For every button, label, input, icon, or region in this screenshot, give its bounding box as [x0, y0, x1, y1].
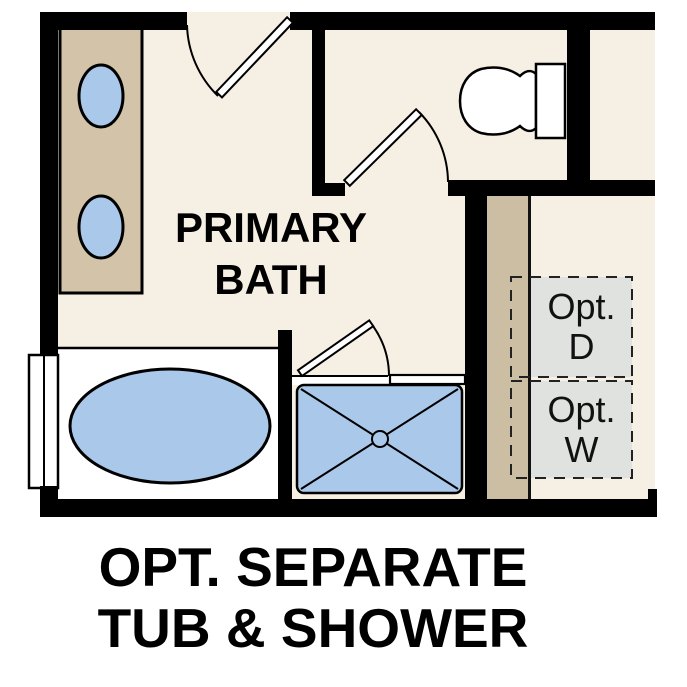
wall-water-closet-right	[567, 12, 590, 182]
wall-tub-shower-divider	[278, 330, 292, 500]
entry-doorway-gap	[187, 12, 290, 30]
wall-closet-left	[465, 196, 487, 500]
sink-bottom-icon	[79, 196, 123, 258]
plan-caption-line1: OPT. SEPARATE	[98, 537, 529, 598]
wall-left-upper	[40, 12, 58, 356]
shower-drain-icon	[372, 431, 388, 447]
shower-glass-panel	[390, 375, 465, 384]
optional-dryer-line2: D	[569, 327, 595, 367]
wall-bottom	[40, 499, 655, 517]
wall-mid-horizontal	[448, 180, 655, 196]
sink-top-icon	[79, 65, 123, 127]
floor-plan-page: PRIMARY BATH Opt. D Opt. W OPT. SEPARATE…	[0, 0, 687, 687]
wall-top-left	[40, 12, 187, 30]
room-label-line2: BATH	[175, 254, 367, 306]
room-label: PRIMARY BATH	[175, 202, 367, 306]
plan-caption: OPT. SEPARATE TUB & SHOWER	[98, 537, 529, 659]
wall-water-closet-left	[312, 12, 325, 183]
tub-icon	[70, 369, 270, 483]
toilet-bowl-icon	[460, 67, 536, 134]
plan-caption-line2: TUB & SHOWER	[98, 598, 529, 659]
closet-counter-strip	[487, 196, 528, 499]
room-label-line1: PRIMARY	[175, 202, 367, 254]
wall-door-jamb	[312, 183, 345, 196]
toilet-tank-icon	[536, 64, 565, 138]
optional-dryer-line1: Opt.	[547, 287, 615, 327]
optional-washer-line1: Opt.	[547, 390, 615, 430]
optional-washer-line2: W	[565, 430, 599, 470]
optional-washer-label: Opt. W	[531, 381, 632, 478]
wall-bottom-endcap	[648, 489, 657, 517]
optional-dryer-label: Opt. D	[531, 277, 632, 377]
wall-top-right	[290, 12, 655, 30]
